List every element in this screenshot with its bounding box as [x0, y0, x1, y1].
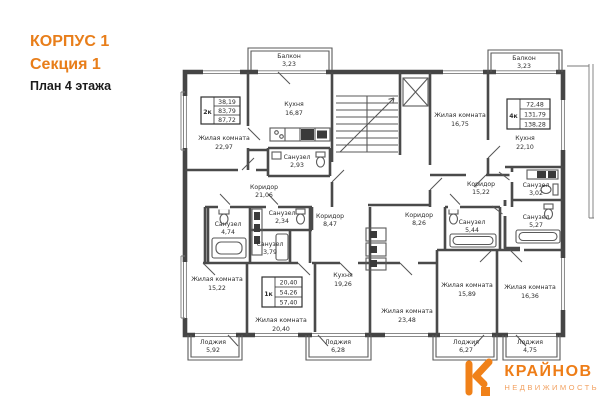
elevator-shaft [366, 78, 428, 270]
apartment-area: 54,26 [280, 290, 298, 297]
logo-title: КРАЙНОВ [504, 364, 599, 380]
apartment-info-1k: 1к 20,40 54,26 57,40 [262, 277, 302, 307]
label-san-2-93: Санузел [284, 154, 311, 161]
apartment-type: 2к [203, 109, 212, 116]
label-kitchen-16-87: Кухня [284, 101, 304, 108]
label-corridor-15-22-area: 15,22 [472, 189, 490, 196]
apartment-area: 87,72 [218, 117, 236, 124]
label-living-16-36: Жилая комната [504, 284, 556, 291]
floor-plan-page: КОРПУС 1 Секция 1 План 4 этажа [0, 0, 605, 403]
label-san-4-74: Санузел [215, 221, 242, 228]
label-living-15-22: Жилая комната [191, 276, 243, 283]
toilet-icon [296, 209, 305, 224]
walls [185, 72, 563, 335]
apartment-area: 131,79 [524, 112, 546, 119]
label-san-3-02: Санузел [523, 182, 550, 189]
apartment-area: 20,40 [280, 280, 298, 287]
stairwell [336, 96, 398, 152]
label-san-5-27-area: 5,27 [529, 222, 543, 229]
label-living-15-22-area: 15,22 [208, 285, 226, 292]
label-corridor-21-06: Коридор [250, 184, 278, 191]
label-living-23-48-area: 23,48 [398, 317, 416, 324]
kitchen-counter-icon [270, 128, 330, 141]
label-living-16-75: Жилая комната [434, 112, 486, 119]
label-kitchen-19-26-area: 19,26 [334, 281, 352, 288]
label-living-23-48: Жилая комната [381, 308, 433, 315]
label-living-22-97-area: 22,97 [215, 144, 233, 151]
label-kitchen-22-10-area: 22,10 [516, 144, 534, 151]
label-living-20-40-area: 20,40 [272, 326, 290, 333]
apartment-area: 57,40 [280, 300, 298, 307]
label-corridor-15-22: Коридор [467, 181, 495, 188]
label-balcony-left: Балкон [277, 53, 301, 60]
label-loggia-6-28-area: 6,28 [331, 347, 345, 354]
label-loggia-4-75-area: 4,75 [523, 347, 537, 354]
apartment-type: 1к [264, 291, 273, 298]
label-loggia-6-27: Лоджия [453, 339, 479, 346]
label-loggia-6-28: Лоджия [325, 339, 351, 346]
label-kitchen-16-87-area: 16,87 [285, 110, 303, 117]
label-living-16-36-area: 16,36 [521, 293, 539, 300]
apartment-area: 72,48 [526, 102, 544, 109]
apartment-info-4k: 4к 72,48 131,79 138,28 [507, 99, 550, 129]
label-san-5-44: Санузел [459, 219, 486, 226]
label-san-5-27: Санузел [523, 214, 550, 221]
label-san-2-34: Санузел [269, 210, 296, 217]
label-corridor-8-26-area: 8,26 [412, 220, 426, 227]
apartment-area: 138,28 [524, 122, 546, 129]
label-loggia-6-27-area: 6,27 [459, 347, 473, 354]
company-logo: КРАЙНОВ НЕДВИЖИМОСТЬ [463, 357, 599, 399]
label-san-3-79: Санузел [257, 241, 284, 248]
label-living-15-89-area: 15,89 [458, 291, 476, 298]
label-living-22-97: Жилая комната [198, 135, 250, 142]
label-kitchen-22-10: Кухня [515, 135, 535, 142]
label-loggia-5-92-area: 5,92 [206, 347, 220, 354]
label-loggia-5-92: Лоджия [200, 339, 226, 346]
label-balcony-right: Балкон [512, 55, 536, 62]
logo-subtitle: НЕДВИЖИМОСТЬ [504, 383, 599, 392]
label-balcony-left-area: 3,23 [282, 61, 296, 68]
apartment-area: 83,79 [218, 108, 236, 115]
label-corridor-8-26: Коридор [405, 212, 433, 219]
label-living-16-75-area: 16,75 [451, 121, 469, 128]
label-living-20-40: Жилая комната [255, 317, 307, 324]
apartment-type: 4к [509, 113, 518, 120]
label-san-4-74-area: 4,74 [221, 229, 235, 236]
apartment-area: 38,19 [218, 99, 236, 106]
label-corridor-21-06-area: 21,06 [255, 192, 273, 199]
label-san-2-34-area: 2,34 [275, 218, 289, 225]
label-balcony-right-area: 3,23 [517, 63, 531, 70]
label-corridor-8-47-area: 8,47 [323, 221, 337, 228]
label-san-2-93-area: 2,93 [290, 162, 304, 169]
label-san-3-02-area: 3,02 [529, 190, 543, 197]
logo-k-house-icon [463, 357, 495, 399]
label-san-5-44-area: 5,44 [465, 227, 479, 234]
label-san-3-79-area: 3,79 [263, 249, 277, 256]
label-kitchen-19-26: Кухня [333, 272, 353, 279]
label-loggia-4-75: Лоджия [517, 339, 543, 346]
label-corridor-8-47: Коридор [316, 213, 344, 220]
label-living-15-89: Жилая комната [441, 282, 493, 289]
floor-plan-drawing: 2к 38,19 83,79 87,72 4к 72,48 131,79 138… [0, 0, 605, 403]
apartment-info-2k: 2к 38,19 83,79 87,72 [201, 97, 240, 124]
